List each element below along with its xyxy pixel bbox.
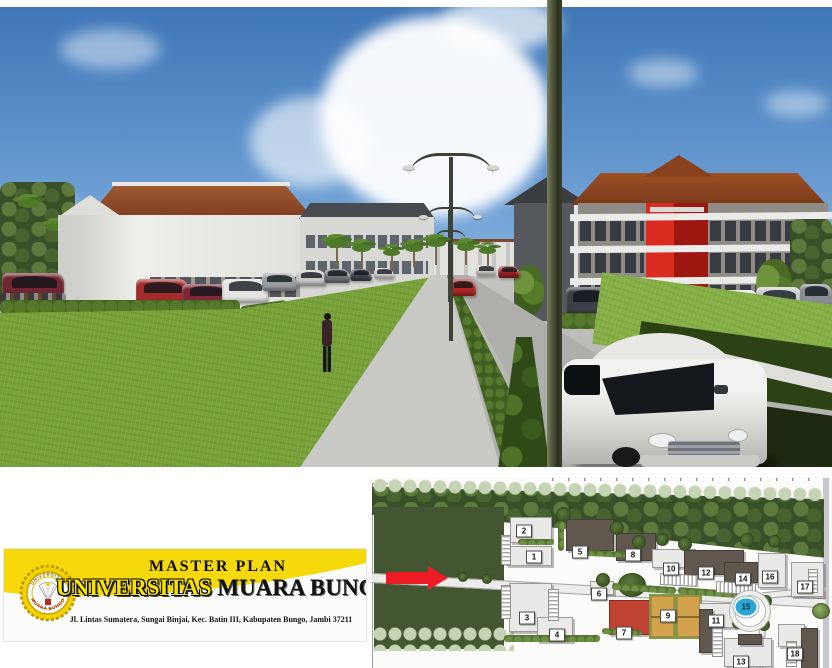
cloud [628,59,698,87]
hedge [558,521,564,551]
siteplan-marker-2: 2 [516,525,532,538]
car [350,269,372,281]
university-name-rest: MUARA BUNGO [212,575,367,600]
main-roof [566,173,832,205]
banner-title: MASTER PLAN [74,558,362,576]
pedestrian-head [324,313,331,320]
foreground-pole-top [547,0,562,9]
logo-red-base [45,599,51,605]
tree [556,507,571,522]
parking-stripes [501,585,511,619]
center-gable [644,155,714,177]
university-name-highlight: UNIVERSITAS [56,575,212,600]
siteplan-marker-10: 10 [663,563,679,576]
palm-trunk [465,249,467,265]
campus-3d-render [0,7,832,467]
lamp-head [473,215,482,219]
siteplan-marker-11: 11 [708,615,724,628]
banner-address: Jl. Lintas Sumatera, Sungai Binjai, Kec.… [62,615,360,624]
tree [740,533,754,547]
lamp-head [419,215,428,219]
siteplan-marker-17: 17 [797,581,813,594]
palm-tree [18,199,40,208]
siteplan-marker-14: 14 [735,573,751,586]
white-van [556,329,772,467]
building-18-wing [801,628,818,668]
siteplan-marker-13: 13 [733,656,749,668]
siteplan-marker-9: 9 [660,610,676,623]
banner-university-name: UNIVERSITAS MUARA BUNGO [56,575,364,601]
cloud [250,97,370,187]
tree [656,533,669,546]
palm-trunk [435,247,437,265]
window-row [580,221,644,241]
siteplan-marker-18: 18 [787,648,803,661]
median-tree [458,572,468,582]
van-wheel [612,447,640,467]
palm-tree [405,244,423,252]
tree-light [812,603,830,619]
auditorium-roof [88,185,312,217]
palm-trunk [391,255,393,269]
lamp-head [403,165,415,170]
tree [610,521,624,535]
palm-trunk [487,253,489,267]
palm-tree [352,244,371,252]
hedge [586,550,630,558]
entrance-arrow-head [428,566,448,590]
palm-trunk [361,251,363,269]
red-car-on-road [450,279,476,296]
lamp-head [487,165,499,170]
hedge [518,539,554,545]
master-plan-site-map: 1 2 3 4 5 6 7 8 9 10 11 12 13 14 15 16 1… [372,477,832,668]
siteplan-marker-8: 8 [625,549,641,562]
palm-tree [457,243,475,251]
tree [678,537,692,551]
car [476,265,496,276]
building-sign [650,207,704,212]
pedestrian-legs [323,346,331,372]
building-13-roof [738,634,762,645]
siteplan-marker-15-roundabout: 15 [734,597,759,618]
siteplan-marker-6: 6 [591,588,607,601]
siteplan-marker-12: 12 [698,567,714,580]
parking-stripes [712,627,723,657]
tree [596,573,610,587]
palm-tree [383,249,400,256]
siteplan-marker-16: 16 [762,571,778,584]
tree-row-light [372,625,514,651]
palm-trunk [336,247,338,267]
siteplan-marker-5: 5 [572,546,588,559]
siteplan-marker-4: 4 [549,629,565,642]
pedestrian [318,313,336,375]
logo-star [46,582,50,586]
court-9b [675,594,702,639]
tree [768,535,781,548]
window-row [580,253,644,273]
van-side-window [564,365,600,395]
car [296,270,326,286]
auditorium-ridge [112,182,290,186]
van-mirror [714,385,728,394]
master-plan-poster: 1 2 3 4 5 6 7 8 9 10 11 12 13 14 15 16 1… [0,0,832,668]
title-banner: UNIVERSITAS MUARA BUNGO MASTER PLAN UNIV… [3,548,367,642]
car [498,266,520,278]
entrance-arrow [386,572,428,584]
car [324,269,350,283]
siteplan-marker-7: 7 [616,627,632,640]
van-bumper [640,455,760,467]
cloud [60,29,160,69]
parking-stripes [501,535,511,565]
palm-tree [426,239,446,247]
car [374,268,394,279]
palm-tree [479,247,496,254]
siteplan-marker-3: 3 [519,612,535,625]
palm-tree [326,239,347,248]
cloud [764,91,828,117]
tree [632,535,646,549]
palm-trunk [413,251,415,267]
siteplan-marker-1: 1 [526,551,542,564]
street-lamp-arm [450,230,466,241]
median-tree [482,574,492,584]
car [262,273,296,291]
parking-stripes [548,589,559,621]
pedestrian-torso [322,320,332,346]
